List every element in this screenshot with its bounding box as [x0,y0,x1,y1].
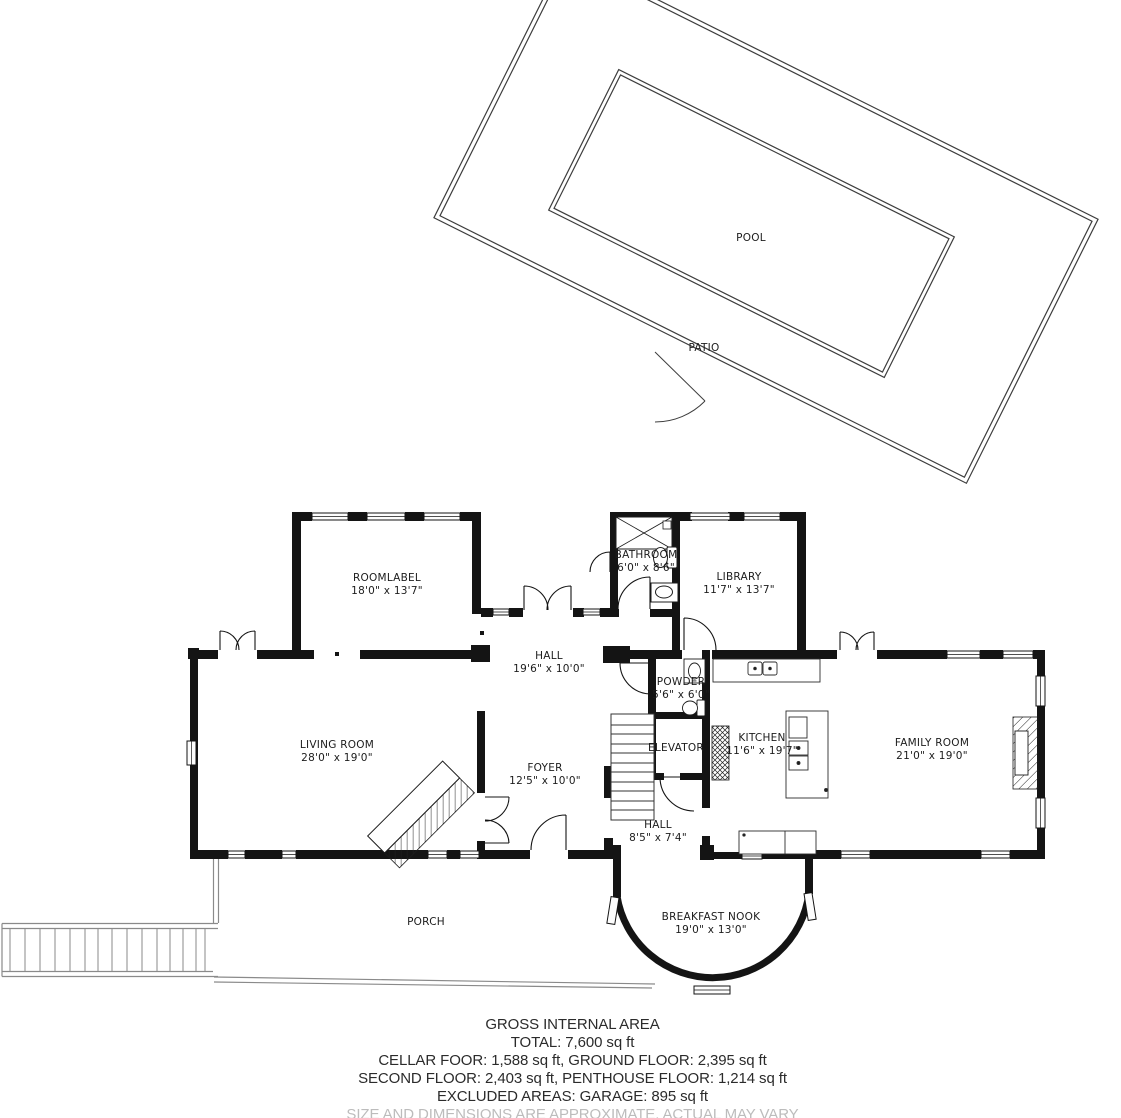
room-name: HALL [629,819,687,832]
summary-floors-2: SECOND FLOOR: 2,403 sq ft, PENTHOUSE FLO… [12,1070,1121,1088]
kitchen-lower-counter [739,831,816,854]
room-name: BREAKFAST NOOK [662,911,761,924]
patio-label: PATIO [688,342,719,355]
pool-outline [549,70,955,378]
area-summary: GROSS INTERNAL AREA TOTAL: 7,600 sq ft C… [12,1016,1121,1118]
room-dims: 19'6" x 10'0" [513,663,585,676]
room-label-elevator: ELEVATOR [648,742,704,755]
patio-outline [434,0,1098,483]
room-dims: 28'0" x 19'0" [300,752,374,765]
summary-disclaimer: SIZE AND DIMENSIONS ARE APPROXIMATE, ACT… [12,1106,1121,1118]
interior-stairs [611,714,654,820]
kitchen-counter-sink [713,659,820,682]
powder-toilet-icon [683,700,706,716]
room-dims: 5'6" x 6'0" [652,689,710,702]
summary-title: GROSS INTERNAL AREA [12,1016,1121,1034]
floorplan-page: POOL PATIO ROOMLABEL 18'0" x 13'7" BATHR… [0,0,1121,1118]
room-name: FOYER [509,762,581,775]
summary-total: TOTAL: 7,600 sq ft [12,1034,1121,1052]
room-label-bathroom: BATHROOM 6'0" x 8'6" [615,549,678,575]
room-label-breakfast-nook: BREAKFAST NOOK 19'0" x 13'0" [662,911,761,937]
room-label-powder: POWDER 5'6" x 6'0" [652,676,710,702]
porch-outline [2,858,655,988]
room-name: FAMILY ROOM [895,737,969,750]
room-name: POWDER [652,676,710,689]
room-dims: 11'7" x 13'7" [703,584,775,597]
room-label-family-room: FAMILY ROOM 21'0" x 19'0" [895,737,969,763]
doors [220,552,874,850]
bathroom-shower-icon [616,517,672,549]
floorplan-canvas [0,0,1121,1118]
room-dims: 19'0" x 13'0" [662,924,761,937]
room-dims: 11'6" x 19'7" [726,745,798,758]
room-dims: 21'0" x 19'0" [895,750,969,763]
room-label-hall-lower: HALL 8'5" x 7'4" [629,819,687,845]
summary-floors-1: CELLAR FOOR: 1,588 sq ft, GROUND FLOOR: … [12,1052,1121,1070]
room-name: ROOMLABEL [351,572,423,585]
room-dims: 18'0" x 13'7" [351,585,423,598]
room-label-roomlabel: ROOMLABEL 18'0" x 13'7" [351,572,423,598]
room-label-living-room: LIVING ROOM 28'0" x 19'0" [300,739,374,765]
room-label-hall-upper: HALL 19'6" x 10'0" [513,650,585,676]
room-name: BATHROOM [615,549,678,562]
room-name: HALL [513,650,585,663]
room-dims: 6'0" x 8'6" [615,562,678,575]
room-label-kitchen: KITCHEN 11'6" x 19'7" [726,732,798,758]
room-name: KITCHEN [726,732,798,745]
room-label-library: LIBRARY 11'7" x 13'7" [703,571,775,597]
bathroom-sink-icon [651,583,678,602]
room-label-porch: PORCH [407,916,445,929]
room-name: LIVING ROOM [300,739,374,752]
room-name: ELEVATOR [648,742,704,755]
room-label-foyer: FOYER 12'5" x 10'0" [509,762,581,788]
pool-label: POOL [736,232,766,245]
room-name: PORCH [407,916,445,929]
room-dims: 12'5" x 10'0" [509,775,581,788]
summary-excluded: EXCLUDED AREAS: GARAGE: 895 sq ft [12,1088,1121,1106]
family-room-fireplace-icon [1013,717,1038,789]
exterior-stairs [10,929,205,972]
room-dims: 8'5" x 7'4" [629,832,687,845]
room-name: LIBRARY [703,571,775,584]
patio-gate-door-icon [655,352,705,422]
